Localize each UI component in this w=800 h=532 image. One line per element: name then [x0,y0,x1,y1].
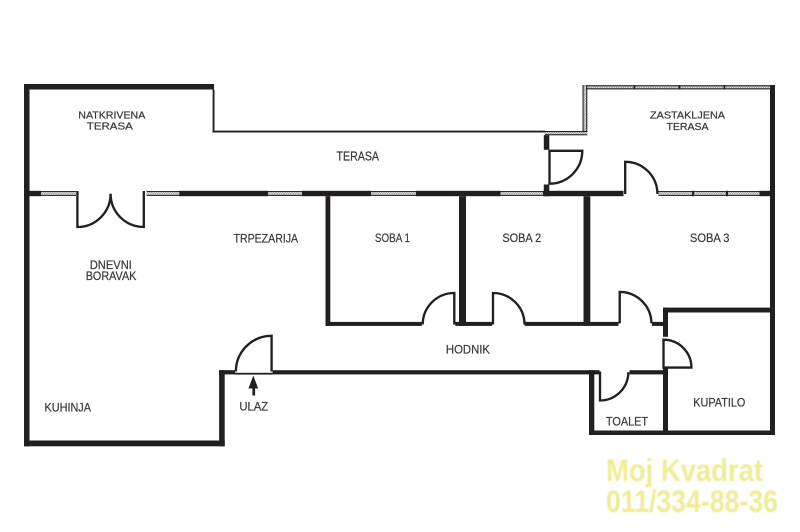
svg-text:TERASA: TERASA [337,148,380,163]
svg-text:ZASTAKLJENA: ZASTAKLJENA [650,111,725,122]
svg-text:NATKRIVENA: NATKRIVENA [78,111,145,122]
svg-text:TOALET: TOALET [606,415,649,429]
svg-text:HODNIK: HODNIK [446,342,490,356]
svg-text:SOBA 3: SOBA 3 [690,231,730,245]
svg-text:SOBA 2: SOBA 2 [502,231,541,245]
svg-text:KUHINJA: KUHINJA [45,401,92,415]
svg-text:ULAZ: ULAZ [239,400,268,414]
svg-text:SOBA 1: SOBA 1 [375,231,410,245]
svg-text:011/334-88-36: 011/334-88-36 [606,483,778,519]
svg-text:TRPEZARIJA: TRPEZARIJA [234,231,299,245]
svg-text:TERASA: TERASA [667,122,709,133]
svg-text:KUPATILO: KUPATILO [693,396,745,410]
svg-text:TERASA: TERASA [87,122,133,133]
svg-text:BORAVAK: BORAVAK [86,269,137,283]
